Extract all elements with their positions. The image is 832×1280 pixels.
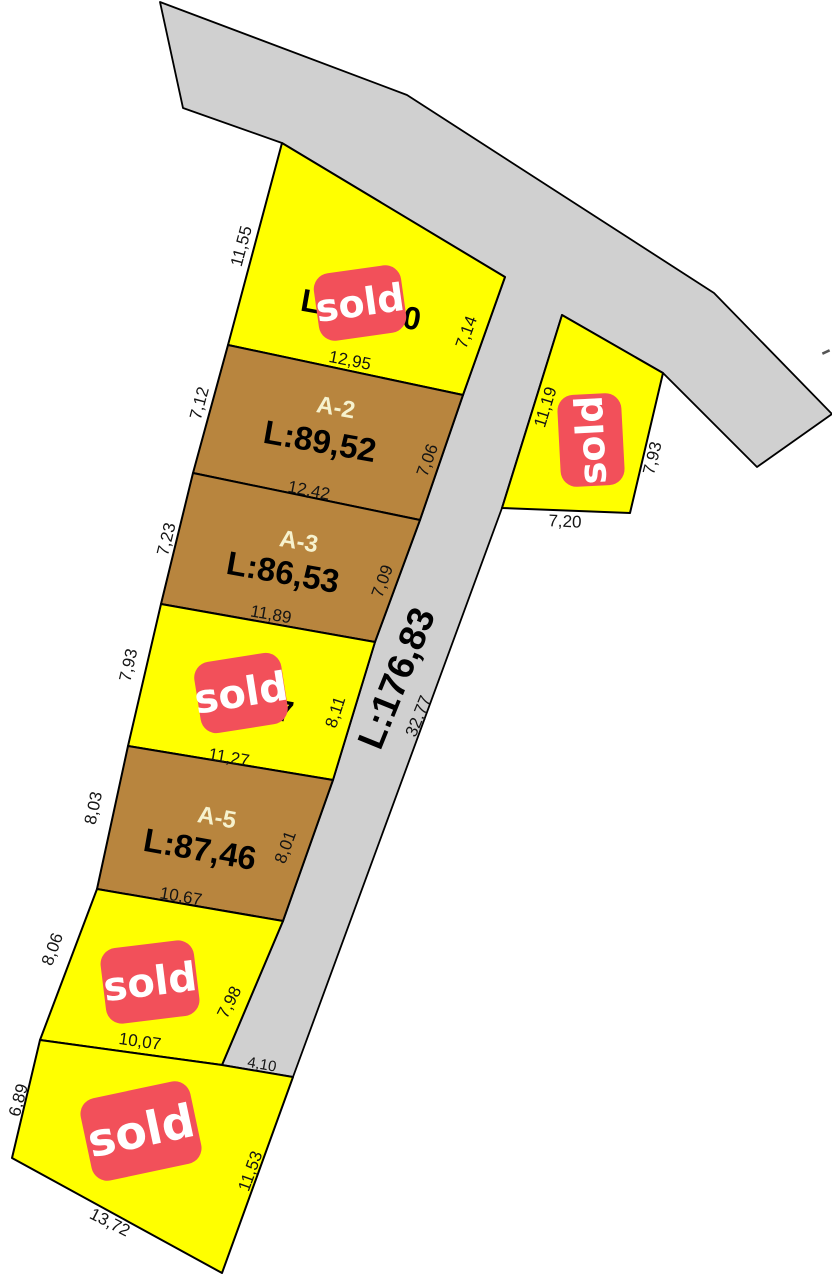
dim-7-93-left: 7,93 xyxy=(115,647,141,684)
sold-badge-a1: sold xyxy=(311,263,409,343)
sold-badge-right-lot: sold xyxy=(557,392,626,487)
sold-badge-a6: sold xyxy=(99,939,202,1026)
land-plot-plan: 11,557,127,237,938,038,066,8911,197,147,… xyxy=(0,0,832,1280)
stray-dash-mark xyxy=(822,349,830,355)
sold-badge-a4: sold xyxy=(189,650,293,736)
dim-8-06: 8,06 xyxy=(38,930,67,968)
plot-map-svg: 11,557,127,237,938,038,066,8911,197,147,… xyxy=(0,0,832,1280)
sold-badge-right-lot-label: sold xyxy=(567,394,616,485)
dim-8-03: 8,03 xyxy=(81,790,106,826)
dim-7-20: 7,20 xyxy=(548,511,582,532)
